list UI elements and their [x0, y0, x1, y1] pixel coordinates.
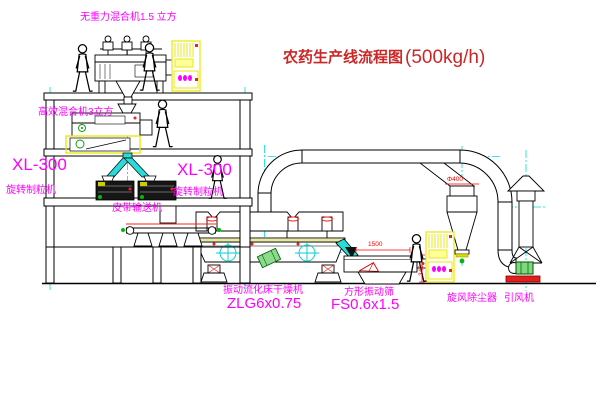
- y-chute: [106, 153, 150, 177]
- flow-diagram-canvas: 无重力混合机1.5 立方 农药生产线流程图 (500kg/h) 高效混合机3立方…: [0, 0, 600, 403]
- induced-draft-fan: [506, 262, 540, 282]
- granulator-left: [96, 176, 134, 200]
- dimension-cyclone-diameter: Φ400: [447, 177, 463, 184]
- label-granulator-left-name: 旋转制粒机: [6, 186, 56, 196]
- label-screen-model: FS0.6x1.5: [331, 297, 399, 312]
- dryer-spring-mounts: [201, 265, 341, 282]
- label-granulator-right-name: 旋转制粒机: [173, 188, 223, 198]
- label-fan: 引风机: [504, 294, 534, 304]
- label-granulator-right-model: XL-300: [177, 161, 232, 178]
- title-capacity: (500kg/h): [405, 48, 485, 67]
- label-dryer-model: ZLG6x0.75: [227, 296, 301, 311]
- control-cabinet-bottom: [426, 232, 454, 282]
- label-top-mixer: 无重力混合机1.5 立方: [80, 13, 177, 23]
- dimension-screen-length: 1500: [368, 242, 382, 249]
- label-granulator-left-model: XL-300: [12, 156, 67, 173]
- label-cyclone: 旋风除尘器: [447, 294, 497, 304]
- label-belt-conveyor: 皮带输送机: [112, 204, 162, 214]
- granulator-right: [138, 176, 176, 200]
- dimension-screen-height: 340: [419, 265, 426, 276]
- label-mid-mixer: 高效混合机3立方: [38, 108, 114, 118]
- person-second-floor: [153, 100, 172, 146]
- diagram-title: 农药生产线流程图 (500kg/h): [283, 48, 485, 67]
- title-text: 农药生产线流程图: [283, 50, 403, 65]
- person-top-left: [73, 45, 92, 91]
- person-top-right: [140, 44, 159, 90]
- control-cabinet-top: [172, 41, 200, 91]
